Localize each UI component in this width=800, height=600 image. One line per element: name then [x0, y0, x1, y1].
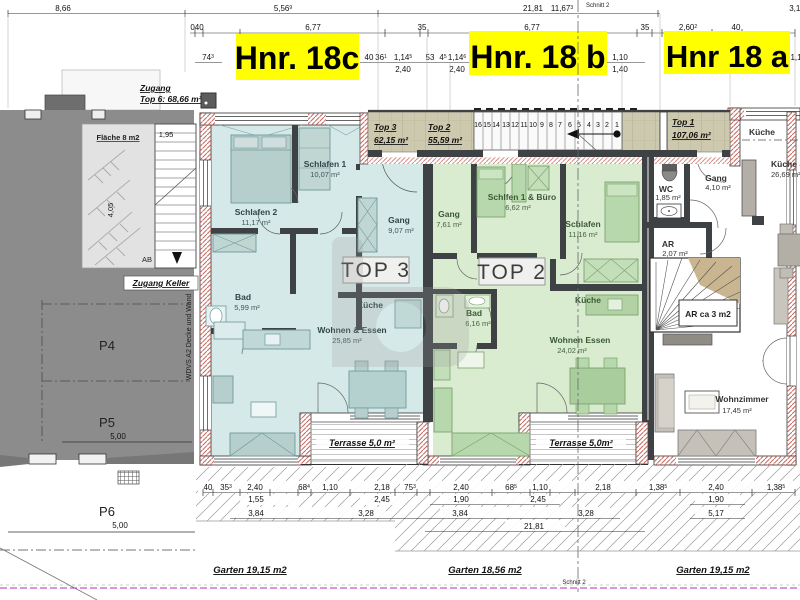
svg-text:P6: P6 — [99, 504, 115, 519]
svg-text:3,28: 3,28 — [578, 509, 594, 518]
svg-text:5,00: 5,00 — [112, 521, 128, 530]
svg-text:3: 3 — [596, 122, 600, 129]
svg-text:1,40: 1,40 — [612, 65, 628, 74]
svg-text:2,18: 2,18 — [595, 483, 611, 492]
svg-text:3,28: 3,28 — [358, 509, 374, 518]
svg-text:1,55: 1,55 — [248, 495, 264, 504]
svg-text:7: 7 — [558, 122, 562, 129]
svg-text:6: 6 — [568, 122, 572, 129]
svg-text:2,40: 2,40 — [247, 483, 263, 492]
svg-text:7,61 m²: 7,61 m² — [436, 220, 462, 229]
svg-text:55,59 m²: 55,59 m² — [428, 135, 463, 145]
svg-text:15: 15 — [483, 122, 491, 129]
svg-text:40: 40 — [204, 483, 213, 492]
svg-text:5,17: 5,17 — [708, 509, 724, 518]
svg-text:35: 35 — [418, 23, 427, 32]
svg-text:Gang: Gang — [705, 173, 727, 183]
svg-text:8: 8 — [549, 122, 553, 129]
svg-text:4: 4 — [587, 122, 591, 129]
svg-text:1,90: 1,90 — [453, 495, 469, 504]
svg-text:17,45 m²: 17,45 m² — [722, 406, 752, 415]
svg-text:2: 2 — [605, 122, 609, 129]
svg-text:Garten 18,56 m2: Garten 18,56 m2 — [448, 565, 522, 576]
svg-text:62,15 m²: 62,15 m² — [374, 135, 409, 145]
svg-text:Küche: Küche — [575, 295, 601, 305]
svg-text:1,10: 1,10 — [532, 483, 548, 492]
svg-text:10,07 m²: 10,07 m² — [310, 170, 340, 179]
svg-text:2,45: 2,45 — [374, 495, 390, 504]
svg-text:10: 10 — [529, 122, 537, 129]
svg-text:Gang: Gang — [388, 215, 410, 225]
svg-text:WDVS A2 Decke und Wand: WDVS A2 Decke und Wand — [186, 294, 193, 381]
svg-text:P4: P4 — [99, 338, 115, 353]
svg-text:3,84: 3,84 — [452, 509, 468, 518]
svg-text:4,05: 4,05 — [106, 203, 115, 218]
svg-text:Schlafen: Schlafen — [565, 219, 600, 229]
svg-text:Zugang Keller: Zugang Keller — [132, 278, 190, 288]
svg-text:21,81: 21,81 — [523, 4, 544, 13]
svg-text:1: 1 — [615, 122, 619, 129]
svg-text:1,10: 1,10 — [612, 53, 628, 62]
svg-text:11,673: 11,673 — [551, 4, 573, 13]
svg-text:11,17 m²: 11,17 m² — [241, 218, 271, 227]
svg-text:2,45: 2,45 — [530, 495, 546, 504]
svg-text:2,40: 2,40 — [708, 483, 724, 492]
svg-text:Schlfen 1 & Büro: Schlfen 1 & Büro — [488, 192, 556, 202]
svg-text:3,16: 3,16 — [789, 4, 800, 13]
svg-text:2,40: 2,40 — [449, 65, 465, 74]
svg-text:Schnitt 2: Schnitt 2 — [586, 3, 610, 9]
svg-text:5,99 m²: 5,99 m² — [234, 303, 260, 312]
svg-text:24,02 m²: 24,02 m² — [557, 346, 587, 355]
svg-text:4,10 m²: 4,10 m² — [705, 183, 731, 192]
svg-text:6,77: 6,77 — [524, 23, 540, 32]
svg-text:AB: AB — [142, 255, 152, 264]
svg-text:Hnr. 18 b: Hnr. 18 b — [470, 39, 605, 75]
svg-text:Zugang: Zugang — [139, 83, 171, 93]
svg-text:TOP 2: TOP 2 — [477, 261, 547, 284]
svg-text:6,16 m²: 6,16 m² — [465, 319, 491, 328]
svg-text:AR: AR — [662, 239, 674, 249]
svg-text:040: 040 — [190, 23, 204, 32]
svg-text:6,62 m²: 6,62 m² — [505, 203, 531, 212]
svg-text:16: 16 — [474, 122, 482, 129]
svg-text:6,77: 6,77 — [305, 23, 321, 32]
svg-text:Fläche 8 m2: Fläche 8 m2 — [97, 133, 140, 142]
svg-text:1,90: 1,90 — [708, 495, 724, 504]
svg-text:2,07 m²: 2,07 m² — [662, 249, 688, 258]
svg-text:12: 12 — [511, 122, 519, 129]
svg-text:2,40: 2,40 — [453, 483, 469, 492]
svg-text:Top 2: Top 2 — [428, 122, 451, 132]
svg-text:Küche: Küche — [749, 127, 775, 137]
svg-text:Schlafen 2: Schlafen 2 — [235, 207, 278, 217]
svg-text:Top 1: Top 1 — [672, 117, 695, 127]
svg-text:Küche & Essen: Küche & Essen — [771, 159, 800, 169]
svg-text:9: 9 — [540, 122, 544, 129]
svg-text:11: 11 — [520, 122, 527, 129]
svg-text:Schlafen 1: Schlafen 1 — [304, 159, 347, 169]
svg-text:Top 6: 68,66 m²: Top 6: 68,66 m² — [140, 94, 203, 104]
svg-text:Garten 19,15 m2: Garten 19,15 m2 — [213, 565, 287, 576]
svg-text:Gang: Gang — [438, 209, 460, 219]
svg-text:Top 3: Top 3 — [374, 122, 397, 132]
svg-text:Hnr 18 a: Hnr 18 a — [666, 39, 789, 74]
svg-text:1,85 m²: 1,85 m² — [655, 193, 681, 202]
svg-text:AR ca 3 m2: AR ca 3 m2 — [685, 309, 731, 319]
svg-text:5,00: 5,00 — [110, 432, 126, 441]
svg-text:Terrasse 5,0m²: Terrasse 5,0m² — [549, 438, 613, 448]
svg-text:Garten 19,15 m2: Garten 19,15 m2 — [676, 565, 750, 576]
svg-text:14: 14 — [492, 122, 500, 129]
svg-text:3,84: 3,84 — [248, 509, 264, 518]
svg-text:Terrasse 5,0 m²: Terrasse 5,0 m² — [329, 438, 396, 448]
svg-text:Bad: Bad — [235, 292, 251, 302]
svg-text:Wohnen Essen: Wohnen Essen — [550, 335, 611, 345]
svg-text:P5: P5 — [99, 415, 115, 430]
svg-text:Hnr. 18c: Hnr. 18c — [235, 40, 360, 76]
svg-text:8,66: 8,66 — [55, 4, 71, 13]
svg-text:11,16 m²: 11,16 m² — [568, 230, 598, 239]
svg-text:Wohnzimmer: Wohnzimmer — [715, 394, 769, 404]
svg-text:13: 13 — [502, 122, 510, 129]
svg-text:40: 40 — [365, 53, 374, 62]
svg-text:35: 35 — [641, 23, 650, 32]
svg-text:21,81: 21,81 — [524, 522, 545, 531]
svg-text:2,18: 2,18 — [374, 483, 390, 492]
svg-text:2,40: 2,40 — [395, 65, 411, 74]
svg-text:26,69 m²: 26,69 m² — [771, 170, 800, 179]
svg-text:1,95: 1,95 — [159, 130, 174, 139]
svg-text:40: 40 — [732, 23, 741, 32]
svg-text:1,10: 1,10 — [322, 483, 338, 492]
svg-text:9,07 m²: 9,07 m² — [388, 226, 414, 235]
svg-text:107,06 m²: 107,06 m² — [672, 130, 712, 140]
